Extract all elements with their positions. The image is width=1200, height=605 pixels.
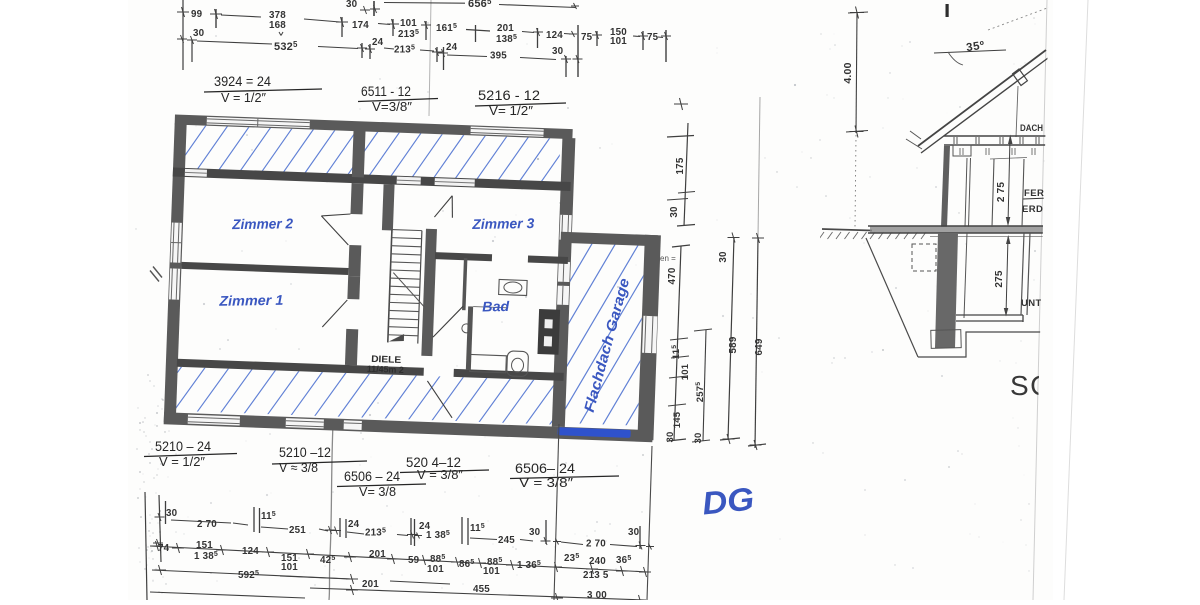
svg-text:6506 – 24: 6506 – 24 (344, 468, 400, 484)
svg-text:6506– 24: 6506– 24 (515, 460, 575, 476)
svg-text:11/45m 2: 11/45m 2 (367, 364, 404, 375)
svg-text:30: 30 (665, 432, 676, 443)
svg-text:395: 395 (490, 51, 507, 62)
svg-text:75: 75 (647, 32, 659, 43)
svg-text:V = 3/8″: V = 3/8″ (519, 475, 573, 490)
svg-text:30: 30 (346, 0, 358, 10)
svg-text:168: 168 (269, 20, 286, 31)
svg-text:101: 101 (610, 36, 627, 47)
svg-text:175: 175 (675, 157, 686, 174)
svg-text:V=3/8″: V=3/8″ (372, 99, 412, 114)
svg-text:2 70: 2 70 (197, 519, 217, 530)
svg-text:30: 30 (718, 251, 729, 263)
svg-text:470: 470 (667, 267, 678, 284)
svg-text:DG: DG (700, 480, 755, 521)
svg-text:30: 30 (529, 527, 541, 538)
svg-text:101: 101 (483, 566, 500, 577)
svg-text:FER: FER (1024, 188, 1044, 199)
svg-text:213 5: 213 5 (583, 570, 609, 581)
svg-text:59: 59 (408, 555, 420, 566)
svg-text:3924 = 24: 3924 = 24 (214, 73, 271, 89)
svg-text:240: 240 (589, 556, 606, 567)
svg-text:V = 1/2″: V = 1/2″ (159, 454, 205, 469)
svg-text:3 00: 3 00 (587, 590, 607, 600)
svg-text:V= 3/8: V= 3/8 (359, 484, 396, 499)
svg-text:245: 245 (498, 535, 515, 546)
svg-text:99: 99 (191, 9, 203, 20)
svg-text:2 70: 2 70 (586, 539, 606, 550)
svg-text:151: 151 (196, 540, 213, 551)
svg-text:201: 201 (362, 579, 379, 590)
svg-text:30: 30 (166, 508, 178, 519)
svg-text:101: 101 (400, 18, 417, 29)
svg-text:649: 649 (754, 338, 765, 355)
svg-text:4.00: 4.00 (842, 62, 854, 83)
svg-text:Zimmer 2: Zimmer 2 (231, 215, 293, 232)
svg-text:589: 589 (728, 336, 739, 353)
svg-text:V ≈ 3/8: V ≈ 3/8 (279, 460, 318, 475)
svg-text:30: 30 (628, 527, 640, 538)
svg-text:30: 30 (193, 28, 205, 39)
svg-text:275: 275 (994, 270, 1005, 288)
svg-text:24: 24 (372, 37, 384, 48)
svg-text:24: 24 (348, 519, 360, 530)
svg-text:101: 101 (680, 363, 691, 380)
svg-text:201: 201 (369, 549, 386, 560)
svg-text:5210 – 24: 5210 – 24 (155, 438, 211, 454)
svg-text:30: 30 (552, 46, 564, 57)
svg-text:2 75: 2 75 (996, 182, 1007, 203)
svg-text:ERDI: ERDI (1022, 204, 1046, 215)
svg-text:251: 251 (289, 525, 306, 536)
svg-text:124: 124 (546, 30, 563, 41)
svg-text:Bad: Bad (482, 298, 510, 314)
svg-text:V = 3/8″: V = 3/8″ (417, 467, 463, 482)
svg-text:74: 74 (158, 543, 170, 554)
svg-text:5216 - 12: 5216 - 12 (478, 87, 540, 103)
svg-text:Zimmer 1: Zimmer 1 (218, 292, 283, 309)
svg-text:101: 101 (427, 564, 444, 575)
svg-text:V= 1/2″: V= 1/2″ (489, 103, 533, 118)
svg-text:455: 455 (473, 584, 490, 595)
svg-text:Zimmer 3: Zimmer 3 (471, 215, 534, 232)
svg-text:V = 1/2″: V = 1/2″ (221, 90, 266, 105)
svg-text:30: 30 (669, 206, 680, 218)
svg-text:101: 101 (281, 562, 298, 573)
svg-text:24: 24 (446, 42, 458, 53)
svg-text:UNT: UNT (1021, 298, 1042, 309)
svg-text:5210 –12: 5210 –12 (279, 444, 331, 460)
svg-text:201: 201 (497, 23, 514, 34)
svg-text:DACH: DACH (1020, 123, 1043, 133)
svg-text:6511 - 12: 6511 - 12 (361, 83, 411, 99)
svg-text:145: 145 (672, 411, 683, 428)
svg-text:35º: 35º (966, 40, 986, 54)
svg-text:174: 174 (352, 20, 369, 31)
svg-text:75: 75 (581, 32, 593, 43)
svg-text:en =: en = (660, 254, 676, 263)
svg-text:124: 124 (242, 546, 259, 557)
